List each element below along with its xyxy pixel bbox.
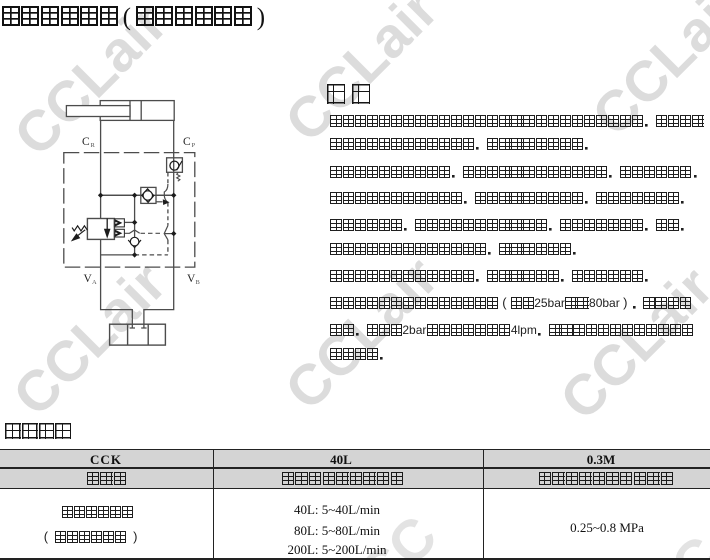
svg-text:B: B: [196, 279, 201, 286]
svg-text:P: P: [192, 142, 196, 149]
svg-text:R: R: [91, 142, 96, 149]
svg-text:C: C: [183, 136, 191, 148]
svg-text:A: A: [92, 279, 97, 286]
svg-text:C: C: [82, 136, 90, 148]
